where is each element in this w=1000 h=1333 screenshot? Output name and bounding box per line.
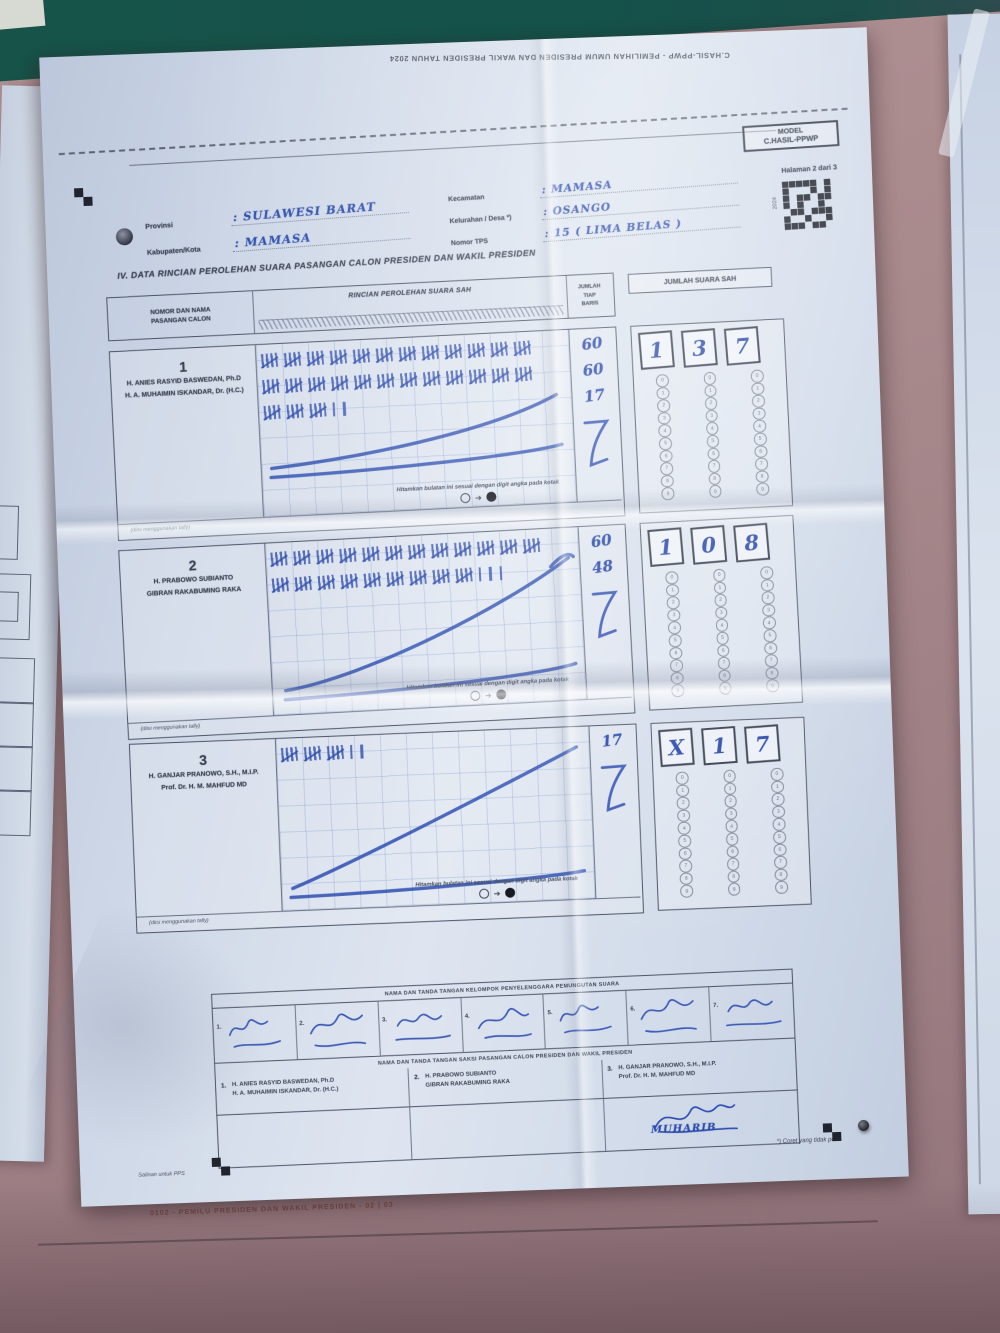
digit-bubble: 7	[774, 856, 787, 869]
kpps-signature-cell: 2.	[295, 1002, 380, 1060]
model-box: MODEL C.HASIL-PPWP	[742, 120, 839, 152]
digit-bubble: 0	[676, 772, 689, 785]
digit-bubble: 3	[705, 409, 718, 422]
digit-bubble: 3	[658, 412, 671, 425]
digit-bubble: 4	[753, 420, 766, 433]
digit-bubble: 9	[728, 883, 741, 896]
valid-votes-panel: 108 012345678901234567890123456789	[639, 515, 803, 711]
digit-bubble: 3	[677, 809, 690, 822]
tally-area: Hitamkan bulatan ini sesuai dengan digit…	[256, 330, 578, 517]
filled-circle-icon	[505, 887, 515, 897]
candidate-cell: 2 H. PRABOWO SUBIANTO GIBRAN RAKABUMING …	[119, 544, 274, 723]
empty-circle-icon	[460, 493, 470, 503]
digit-bubble: 1	[676, 784, 689, 797]
kpps-signature-cell: 3.	[378, 998, 463, 1056]
digit-bubble: 7	[660, 462, 673, 475]
qr-code	[782, 179, 835, 232]
digit-bubble: 8	[765, 667, 778, 680]
digit-bubble: 8	[718, 669, 731, 682]
digit-bubble: 8	[671, 672, 684, 685]
digit-bubble: 7	[727, 858, 740, 871]
overleaf-footer-text: C.HASIL-PPWP - PEMILIHAN UMUM PRESIDEN D…	[330, 50, 790, 64]
digit-bubble: 6	[660, 450, 673, 463]
screw	[858, 1120, 869, 1131]
kpps-signature-cell: 1.	[213, 1005, 298, 1063]
digit-bubble: 6	[726, 845, 739, 858]
wall-object	[0, 0, 45, 30]
digit-bubble: 7	[717, 657, 730, 670]
digit-bubble: 7	[708, 460, 721, 473]
candidate-block: 3 H. GANJAR PRANOWO, S.H., M.I.P. Prof. …	[129, 717, 806, 932]
total-digit-box: 1	[638, 330, 675, 370]
digit-bubble: 9	[756, 483, 769, 496]
digit-bubble: 9	[662, 487, 675, 500]
signature-scribble	[386, 1002, 458, 1051]
z-mark	[579, 414, 616, 474]
saksi-signature-cell	[410, 1099, 605, 1159]
page-number: Halaman 2 dari 3	[781, 164, 837, 175]
digit-bubble: 0	[656, 374, 669, 387]
row-total-cell: 606017	[569, 328, 621, 502]
candidate-block: 2 H. PRABOWO SUBIANTO GIBRAN RAKABUMING …	[118, 515, 797, 738]
z-mark	[587, 585, 624, 645]
digit-bubble: 4	[725, 820, 738, 833]
signature-section: NAMA DAN TANDA TANGAN KELOMPOK PENYELENG…	[211, 969, 800, 1169]
digit-bubble: 9	[719, 682, 732, 695]
kpps-signature-cell: 4.	[461, 994, 546, 1052]
signature-scribble	[304, 1006, 376, 1055]
digit-bubble: 3	[752, 407, 765, 420]
digit-bubble: 1	[751, 382, 764, 395]
digit-bubble: 3	[762, 604, 775, 617]
saksi-signature-cell	[217, 1107, 412, 1167]
digit-bubble: 3	[667, 609, 680, 622]
total-digit-box: X	[658, 728, 695, 767]
digit-bubble: 7	[765, 654, 778, 667]
digit-bubble: 2	[771, 793, 784, 806]
digit-bubble: 0	[703, 372, 716, 385]
saksi-number: 1.	[221, 1082, 226, 1089]
row-total-value: 17	[571, 381, 618, 413]
row-total-value: 17	[589, 726, 636, 757]
digit-bubble: 5	[659, 437, 672, 450]
digit-bubble: 4	[658, 424, 671, 437]
total-digit-box: 3	[681, 328, 718, 368]
total-digit-box: 1	[647, 527, 684, 567]
saksi-signature-cell: MUHARIB	[604, 1090, 799, 1150]
tally-area: Hitamkan bulatan ini sesuai dengan digit…	[265, 527, 588, 715]
digit-bubble: 5	[716, 631, 729, 644]
signature-scribble	[469, 999, 541, 1048]
digit-bubble: 1	[724, 782, 737, 795]
total-digit-box: 0	[690, 525, 727, 565]
digit-bubble: 8	[755, 470, 768, 483]
header-line: BARIS	[568, 299, 612, 310]
form-box	[0, 745, 33, 792]
vote-table: NOMOR DAN NAMAPASANGAN CALON RINCIAN PER…	[106, 265, 806, 935]
digit-bubble: 4	[706, 422, 719, 435]
digit-bubble: 8	[708, 472, 721, 485]
digit-bubble: 5	[706, 435, 719, 448]
digit-bubble: 9	[709, 485, 722, 498]
field-label: Kabupaten/Kota	[147, 244, 233, 257]
digit-bubble: 2	[761, 591, 774, 604]
digit-bubble: 4	[715, 619, 728, 632]
valid-votes-panel: X17 012345678901234567890123456789	[650, 717, 811, 911]
digit-bubble: 2	[752, 395, 765, 408]
candidate-blocks: 1 H. ANIES RASYID BASWEDAN, Ph.D H. A. M…	[109, 319, 807, 935]
digit-bubble: 6	[773, 843, 786, 856]
digit-bubble: 6	[754, 445, 767, 458]
form-box	[0, 701, 34, 748]
kpps-signature-cell: 7.	[709, 984, 794, 1042]
digit-bubble: 2	[667, 596, 680, 609]
signature-scribble	[221, 1009, 293, 1058]
row-total-cell: 6048	[579, 525, 632, 699]
z-mark	[596, 759, 632, 818]
digit-bubble: 5	[678, 834, 691, 847]
total-digit-box: 8	[733, 523, 770, 563]
filled-circle-icon	[486, 492, 496, 502]
digit-bubble: 3	[715, 606, 728, 619]
digit-bubble: 2	[724, 795, 737, 808]
tally-form-sheet: C.HASIL-PPWP - PEMILIHAN UMUM PRESIDEN D…	[39, 27, 909, 1207]
digit-bubble: 0	[713, 569, 726, 582]
form-box	[0, 657, 35, 704]
board-shadow	[0, 1183, 1000, 1333]
digit-bubble: 8	[680, 872, 693, 885]
tally-example-row	[258, 305, 563, 330]
digit-bubble: 9	[671, 684, 684, 697]
col-header-candidates: NOMOR DAN NAMAPASANGAN CALON	[107, 291, 255, 340]
form-box	[0, 505, 19, 560]
digit-bubble: 6	[764, 642, 777, 655]
kpu-logo	[115, 228, 133, 246]
digit-bubble: 9	[766, 679, 779, 692]
digit-bubble: 8	[727, 870, 740, 883]
field-value: : SULAWESI BARAT	[230, 197, 409, 226]
digit-bubble: 0	[751, 369, 764, 382]
total-digit-box: 7	[744, 724, 781, 763]
digit-bubble: 4	[772, 818, 785, 831]
signature-scribble	[635, 991, 707, 1040]
digit-bubble: 0	[665, 571, 678, 584]
digit-bubble: 5	[726, 833, 739, 846]
saksi-number: 3.	[607, 1065, 612, 1072]
photo-scene: 0102 - PEMILU PRESIDEN DAN WAKIL PRESIDE…	[0, 0, 1000, 1333]
digit-bubble: 4	[668, 621, 681, 634]
digit-bubble: 6	[669, 647, 682, 660]
digit-bubble: 5	[773, 831, 786, 844]
empty-circle-icon	[470, 691, 481, 702]
digit-bubble: 5	[754, 432, 767, 445]
arrow-icon: ➔	[494, 889, 501, 898]
kpps-signature-cell: 6.	[627, 987, 712, 1045]
digit-bubble: 0	[723, 770, 736, 783]
digit-bubble: 5	[763, 629, 776, 642]
digit-bubble: 2	[657, 399, 670, 412]
footer-left: Salinan untuk PPS	[138, 1171, 185, 1179]
total-digit-box: 7	[724, 326, 761, 366]
digit-bubble: 0	[770, 768, 783, 781]
digit-bubble: 7	[755, 457, 768, 470]
signature-scribble	[552, 995, 624, 1044]
digit-bubble: 1	[761, 579, 774, 592]
form-box	[0, 789, 32, 836]
qr-side-label: 2024	[772, 197, 779, 210]
digit-bubble: 1	[704, 384, 717, 397]
digit-bubble: 6	[717, 644, 730, 657]
digit-bubble: 2	[677, 797, 690, 810]
digit-bubble: 9	[680, 885, 693, 898]
signature-scribble	[718, 988, 790, 1037]
arrow-icon: ➔	[475, 493, 482, 502]
digit-bubble: 6	[707, 447, 720, 460]
candidate-cell: 3 H. GANJAR PRANOWO, S.H., M.I.P. Prof. …	[130, 739, 283, 917]
digit-bubble: 1	[771, 780, 784, 793]
filled-circle-icon	[496, 689, 507, 700]
digit-bubble: 7	[670, 659, 683, 672]
row-total-cell: 17	[590, 725, 641, 899]
digit-bubble: 3	[725, 807, 738, 820]
digit-bubble: 2	[714, 594, 727, 607]
digit-bubble: 6	[679, 847, 692, 860]
col-header-valid-votes: JUMLAH SUARA SAH	[628, 267, 773, 294]
digit-bubble: 0	[760, 566, 773, 579]
header-fields-right: Kecamatan: MAMASAKelurahan / Desa *): OS…	[447, 164, 781, 251]
empty-circle-icon	[479, 889, 489, 899]
digit-bubble: 1	[657, 387, 670, 400]
form-box	[0, 591, 19, 622]
digit-bubble: 3	[772, 805, 785, 818]
digit-bubble: 8	[661, 475, 674, 488]
col-header-tally: RINCIAN PEROLEHAN SUARA SAH	[253, 276, 569, 333]
arrow-icon: ➔	[485, 690, 492, 699]
candidate-cell: 1 H. ANIES RASYID BASWEDAN, Ph.D H. A. M…	[110, 345, 264, 524]
valid-votes-panel: 137 012345678901234567890123456789	[630, 318, 793, 513]
tally-area: Hitamkan bulatan ini sesuai dengan digit…	[276, 726, 597, 910]
total-digit-box: 1	[701, 726, 738, 765]
field-label: Nomor TPS	[451, 234, 543, 247]
digit-bubble: 2	[705, 397, 718, 410]
saksi-number: 2.	[414, 1074, 419, 1081]
digit-bubble: 1	[666, 584, 679, 597]
digit-bubble: 4	[678, 822, 691, 835]
row-total-value: 48	[579, 552, 626, 584]
digit-bubble: 4	[763, 616, 776, 629]
field-label: Provinsi	[145, 218, 231, 231]
digit-bubble: 7	[679, 860, 692, 873]
digit-bubble: 9	[775, 881, 788, 894]
digit-bubble: 1	[713, 581, 726, 594]
digit-bubble: 5	[669, 634, 682, 647]
col-header-row-total: JUMLAHTIAPBARIS	[567, 274, 613, 318]
candidate-block: 1 H. ANIES RASYID BASWEDAN, Ph.D H. A. M…	[109, 319, 787, 540]
kpps-signature-cell: 5.	[544, 991, 629, 1049]
digit-bubble: 8	[774, 868, 787, 881]
